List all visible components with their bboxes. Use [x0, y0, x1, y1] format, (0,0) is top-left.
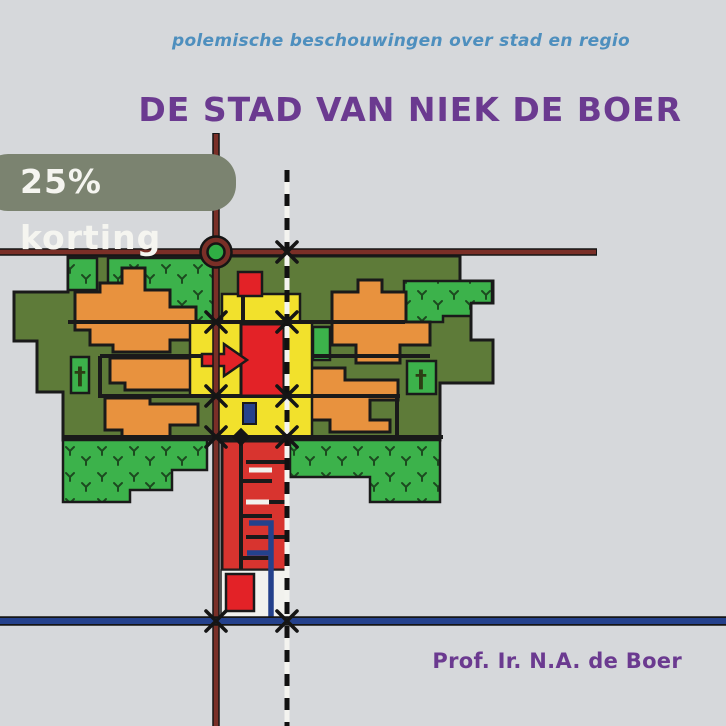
- cover-subtitle: polemische beschouwingen over stad en re…: [76, 31, 726, 51]
- cover-author: Prof. Ir. N.A. de Boer: [432, 649, 682, 673]
- cover-title: DE STAD VAN NIEK DE BOER: [138, 90, 682, 129]
- red-block-small: [238, 272, 262, 296]
- book-cover: † †: [0, 0, 726, 726]
- red-block-bottom: [226, 574, 254, 611]
- blue-lot: [243, 403, 256, 424]
- roundabout-icon: [201, 237, 232, 268]
- discount-badge: 25% korting: [0, 154, 236, 211]
- discount-badge-label: 25% korting: [20, 162, 161, 257]
- church-cross-icon: †: [74, 362, 86, 390]
- church-cross-icon: †: [415, 365, 427, 393]
